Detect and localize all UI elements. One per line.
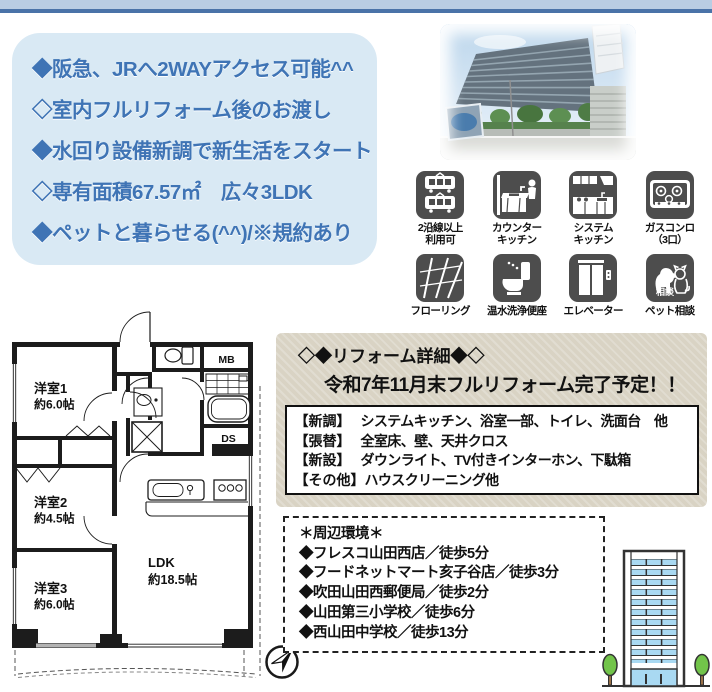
feature-line: ◇専有面積67.57㎡ 広々3LDK [32,175,377,205]
gas-stove-icon [646,171,694,219]
train-icon [416,171,464,219]
reform-row-label: 【新調】 [295,412,361,432]
environment-item: ◆フレスコ山田西店／徒歩5分 [299,545,603,565]
room-size: 約18.5帖 [148,572,198,587]
amenity-label: エレベーター [564,305,623,317]
reform-details-box: ◇◆リフォーム詳細◆◇ 令和7年11月末フルリフォーム完了予定！！ 【新調】 シ… [276,333,707,507]
amenity-label: ガスコンロ （3口） [645,222,695,247]
building-illustration [600,545,712,690]
environment-item: ◆西山田中学校／徒歩13分 [299,624,603,644]
kitchen-sink-icon [148,480,204,500]
amenity-label: 2沿線以上 利用可 [418,222,463,247]
floorplan: 洋室1 約6.0帖 洋室2 約4.5帖 洋室3 約6.0帖 LDK 約18.5帖… [8,310,270,690]
amenity-washlet: 温水洗浄便座 [479,254,556,317]
environment-box: ＊周辺環境＊ ◆フレスコ山田西店／徒歩5分 ◆フードネットマート亥子谷店／徒歩3… [283,516,605,653]
amenity-counter-kitchen: カウンター キッチン [479,171,556,247]
meter-box-label: MB [218,354,235,366]
feature-line: ◆阪急、JRへ2WAYアクセス可能^^ [32,52,377,82]
amenity-label: ペット相談 [645,305,695,317]
reform-title: ◇◆リフォーム詳細◆◇ [298,342,707,367]
amenity-label: システム キッチン [573,222,613,247]
duct-space-label: DS [221,433,236,445]
toilet-bowl-icon [165,349,181,362]
reform-row: 【新調】 システムキッチン、浴室一部、トイレ、洗面台 他 [295,412,689,432]
tree-icon [603,655,617,686]
feature-line: ◆ペットと暮らせる(^^)/※規約あり [32,216,377,246]
feature-line: ◆水回り設備新調で新生活をスタート [32,134,377,164]
reform-row-label: 【その他】 [295,471,365,491]
flooring-icon [416,254,464,302]
room-size: 約6.0帖 [34,397,75,412]
room-label: 洋室2 [34,495,67,510]
pet-icon: 相談 [646,254,694,302]
reform-row-label: 【張替】 [295,432,361,452]
room-size: 約6.0帖 [34,597,75,612]
room-label: 洋室1 [34,381,67,396]
amenity-label: カウンター キッチン [492,222,542,247]
reform-row-label: 【新設】 [295,451,361,471]
reform-row: 【新設】 ダウンライト、TV付きインターホン、下駄箱 [295,451,689,471]
reform-row-text: 全室床、壁、天井クロス [361,432,508,452]
flyer-page: ◆阪急、JRへ2WAYアクセス可能^^ ◇室内フルリフォーム後のお渡し ◆水回り… [0,0,712,692]
counter-kitchen-icon [493,171,541,219]
amenity-label: フローリング [411,305,470,317]
building-photo-illustration [440,24,636,160]
top-bar-light [0,0,712,9]
environment-item: ◆フードネットマート亥子谷店／徒歩3分 [299,564,603,584]
building-exterior-photo [440,24,636,160]
amenity-elevator: エレベーター [555,254,632,317]
amenity-system-kitchen: システム キッチン [555,171,632,247]
reform-row: 【その他】 ハウスクリーニング他 [295,471,689,491]
reform-row-text: ダウンライト、TV付きインターホン、下駄箱 [361,451,631,471]
top-bar-accent [0,9,712,13]
amenity-gas-stove: ガスコンロ （3口） [632,171,709,247]
room-label: LDK [148,555,175,570]
tree-icon [695,655,709,686]
room-size: 約4.5帖 [34,511,75,526]
system-kitchen-icon [569,171,617,219]
amenity-label: 温水洗浄便座 [487,305,546,317]
feature-line: ◇室内フルリフォーム後のお渡し [32,93,377,123]
washlet-icon [493,254,541,302]
reform-items-box: 【新調】 システムキッチン、浴室一部、トイレ、洗面台 他 【張替】 全室床、壁、… [285,405,699,495]
environment-item: ◆吹田山田西郵便局／徒歩2分 [299,584,603,604]
reform-row: 【張替】 全室床、壁、天井クロス [295,432,689,452]
amenity-flooring: フローリング [402,254,479,317]
washbasin-icon [134,388,162,416]
elevator-icon [569,254,617,302]
environment-title: ＊周辺環境＊ [299,525,603,545]
room-label: 洋室3 [34,581,67,596]
feature-box: ◆阪急、JRへ2WAYアクセス可能^^ ◇室内フルリフォーム後のお渡し ◆水回り… [12,33,377,265]
environment-item: ◆山田第三小学校／徒歩6分 [299,604,603,624]
amenity-two-lines: 2沿線以上 利用可 [402,171,479,247]
reform-row-text: システムキッチン、浴室一部、トイレ、洗面台 他 [361,412,668,432]
reform-row-text: ハウスクリーニング他 [365,471,499,491]
svg-text:相談: 相談 [656,286,675,297]
toilet-icon [182,347,193,364]
amenity-pet: 相談 ペット相談 [632,254,709,317]
reform-subtitle: 令和7年11月末フルリフォーム完了予定！！ [324,370,707,397]
amenity-grid: 2沿線以上 利用可 カウンター キッチン [402,171,708,317]
